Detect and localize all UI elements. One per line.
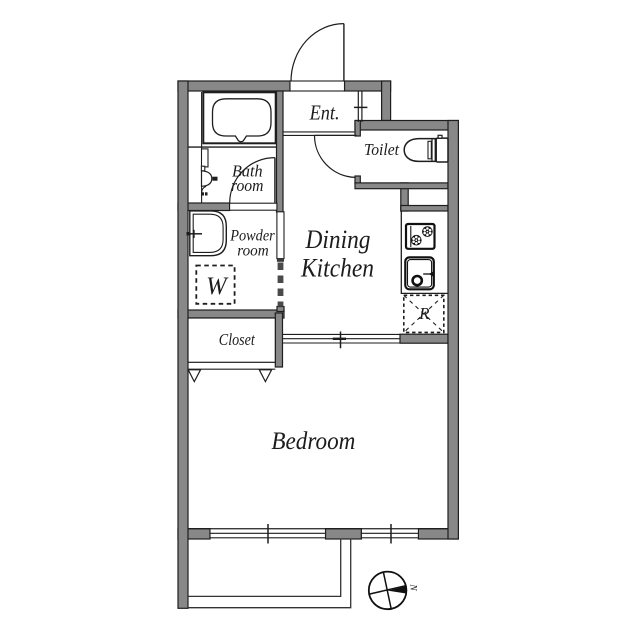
svg-text:Closet: Closet — [219, 330, 255, 349]
svg-text:room: room — [237, 242, 269, 259]
svg-text:Toilet: Toilet — [364, 140, 399, 159]
svg-text:N: N — [407, 583, 417, 591]
svg-text:W: W — [206, 273, 229, 300]
svg-text:Kitchen: Kitchen — [300, 254, 374, 283]
svg-text:Bedroom: Bedroom — [271, 426, 355, 455]
svg-text:room: room — [231, 176, 264, 195]
svg-text:Ent.: Ent. — [309, 101, 340, 125]
svg-text:Dining: Dining — [305, 225, 371, 254]
svg-text:R: R — [418, 304, 430, 323]
